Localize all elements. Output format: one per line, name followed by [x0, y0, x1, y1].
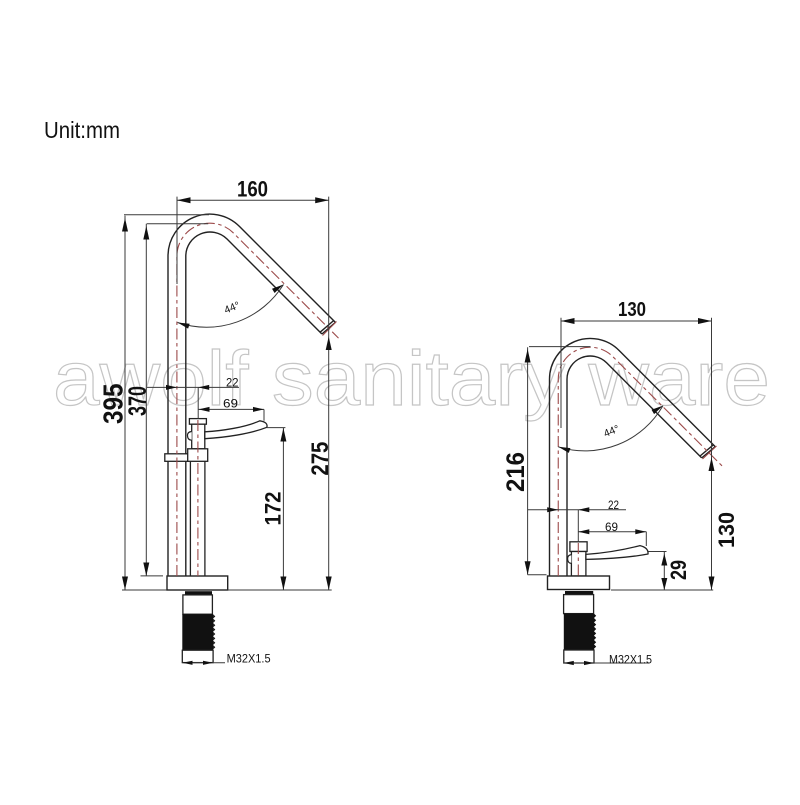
- svg-text:awolf sanitary ware: awolf sanitary ware: [53, 336, 770, 422]
- svg-text:370: 370: [124, 386, 152, 416]
- svg-text:69: 69: [223, 397, 238, 411]
- svg-text:160: 160: [237, 176, 268, 201]
- svg-text:130: 130: [714, 512, 739, 548]
- svg-text:130: 130: [618, 299, 646, 321]
- svg-text:29: 29: [666, 560, 691, 580]
- svg-text:M32X1.5: M32X1.5: [227, 652, 271, 666]
- svg-text:69: 69: [605, 520, 618, 534]
- svg-text:275: 275: [307, 442, 334, 476]
- svg-text:216: 216: [502, 452, 530, 492]
- svg-text:M32X1.5: M32X1.5: [609, 653, 652, 667]
- svg-text:22: 22: [608, 498, 619, 512]
- svg-text:22: 22: [226, 376, 239, 390]
- svg-text:Unit:mm: Unit:mm: [44, 117, 120, 143]
- svg-text:172: 172: [261, 492, 286, 526]
